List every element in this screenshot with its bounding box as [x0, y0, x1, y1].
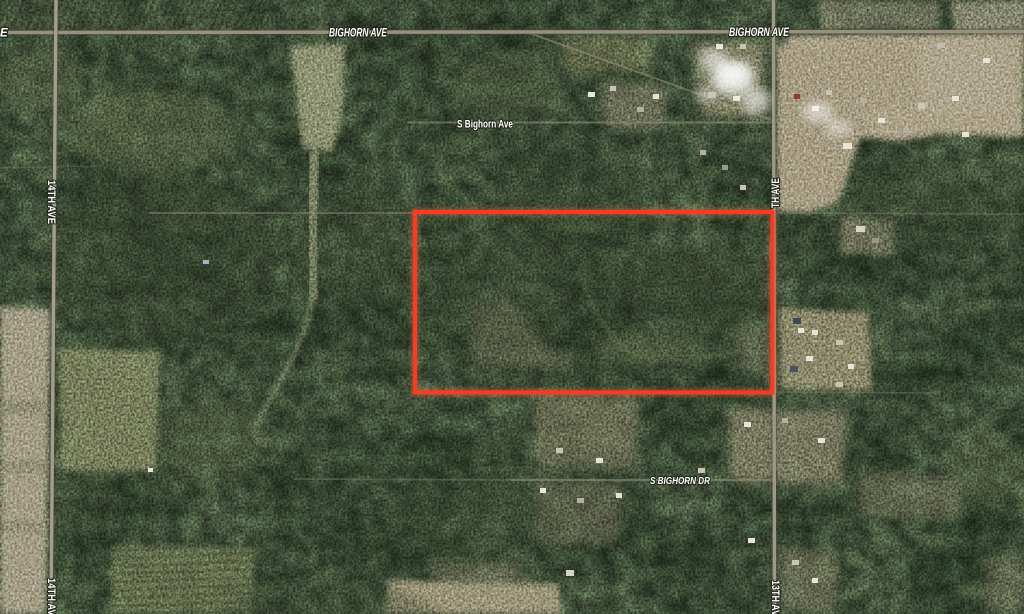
svg-text:S BIGHORN DR: S BIGHORN DR	[650, 475, 710, 487]
svg-text:S Bighorn Ave: S Bighorn Ave	[457, 119, 513, 131]
svg-text:BIGHORN AVE: BIGHORN AVE	[729, 25, 790, 39]
svg-text:14TH AVE: 14TH AVE	[45, 578, 57, 614]
svg-text:BIGHORN AVE: BIGHORN AVE	[329, 26, 388, 40]
svg-text:E: E	[0, 28, 8, 40]
svg-text:14TH AVE: 14TH AVE	[45, 180, 57, 224]
svg-text:13TH AVE: 13TH AVE	[769, 580, 781, 614]
svg-text:TH AVE: TH AVE	[770, 178, 782, 208]
